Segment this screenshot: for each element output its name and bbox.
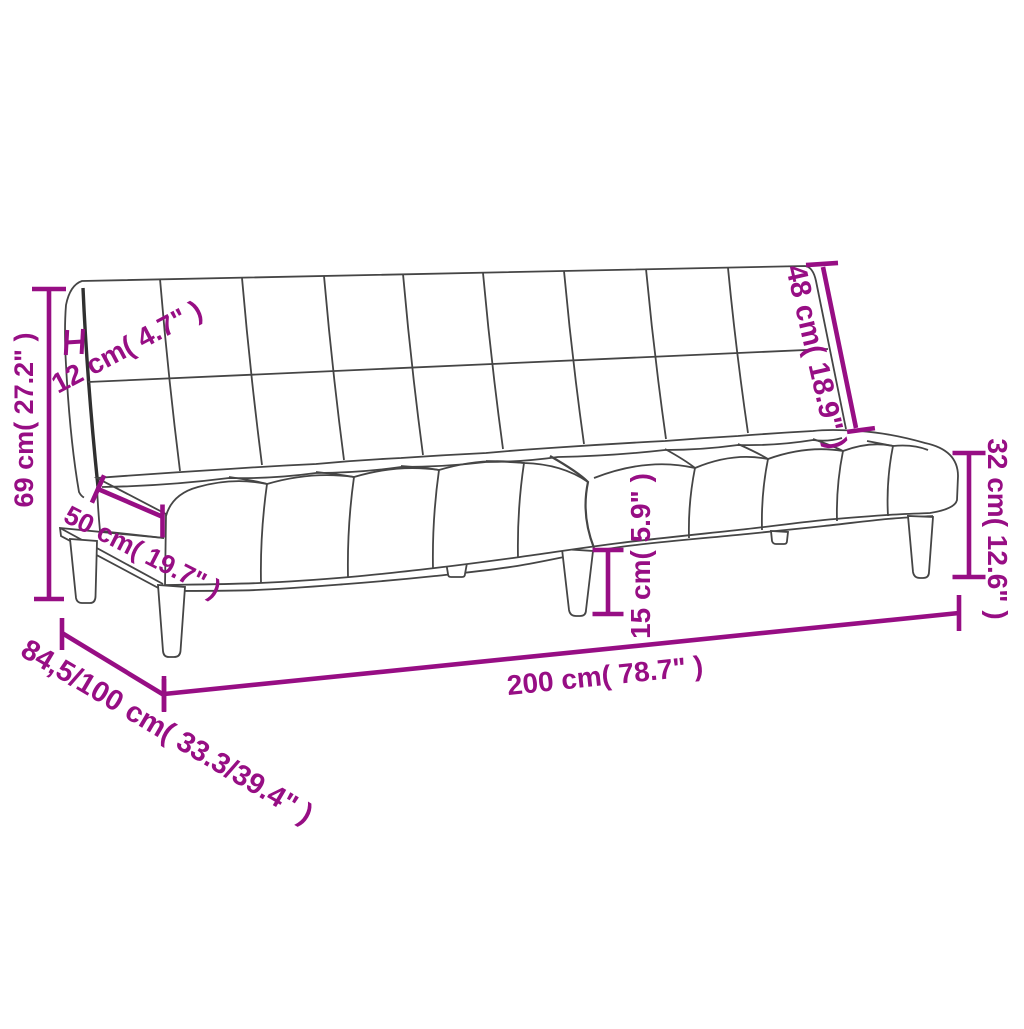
svg-text:32 cm( 12.6" ): 32 cm( 12.6" ) (982, 438, 1013, 619)
svg-text:69 cm( 27.2" ): 69 cm( 27.2" ) (9, 333, 39, 508)
svg-text:15 cm( 5.9" ): 15 cm( 5.9" ) (625, 473, 656, 639)
